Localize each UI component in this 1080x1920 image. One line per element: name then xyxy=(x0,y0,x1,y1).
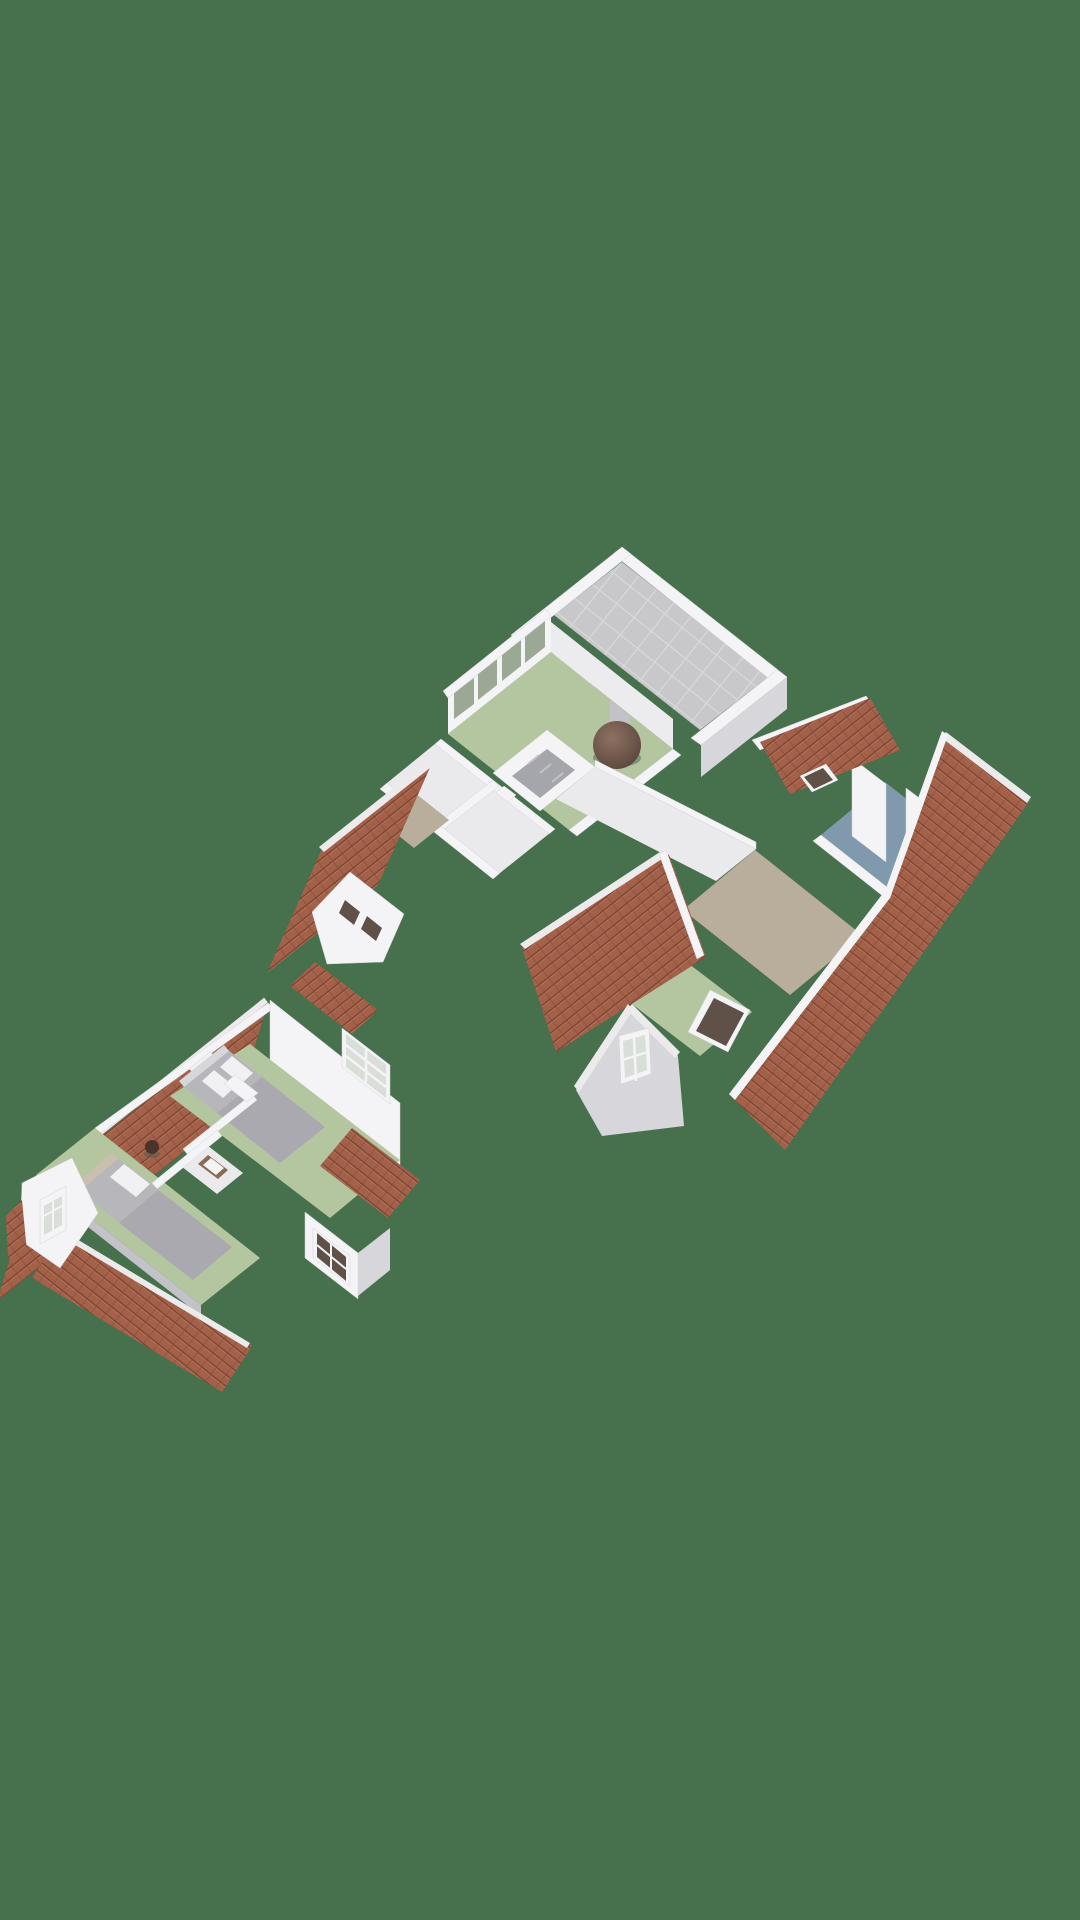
attic-floorplan xyxy=(0,1000,420,1392)
dormer-side-wall xyxy=(358,1228,390,1296)
roof-slope-left-lower xyxy=(290,962,378,1034)
floorplan-render-canvas xyxy=(0,0,1080,1920)
stool xyxy=(145,1140,159,1154)
beanbag xyxy=(593,721,641,769)
